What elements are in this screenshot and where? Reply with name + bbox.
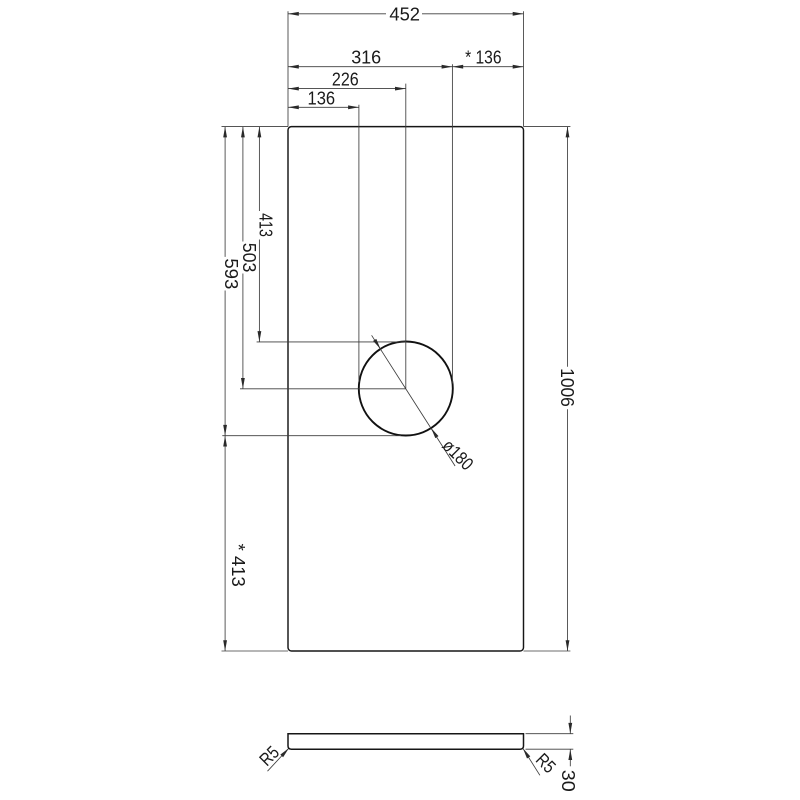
svg-text:30: 30 [558, 770, 578, 792]
svg-text:136: 136 [308, 88, 336, 108]
svg-text:R5: R5 [256, 742, 284, 770]
svg-text:452: 452 [389, 5, 420, 25]
svg-text:316: 316 [351, 48, 381, 68]
svg-text:593: 593 [221, 258, 241, 289]
svg-text:413: 413 [255, 213, 275, 237]
svg-text:* 136: * 136 [465, 48, 501, 68]
svg-text:R5: R5 [532, 749, 560, 777]
svg-text:* 413: * 413 [228, 544, 248, 587]
svg-text:1006: 1006 [557, 368, 577, 407]
svg-text:226: 226 [332, 70, 359, 90]
svg-text:ø180: ø180 [438, 435, 477, 474]
